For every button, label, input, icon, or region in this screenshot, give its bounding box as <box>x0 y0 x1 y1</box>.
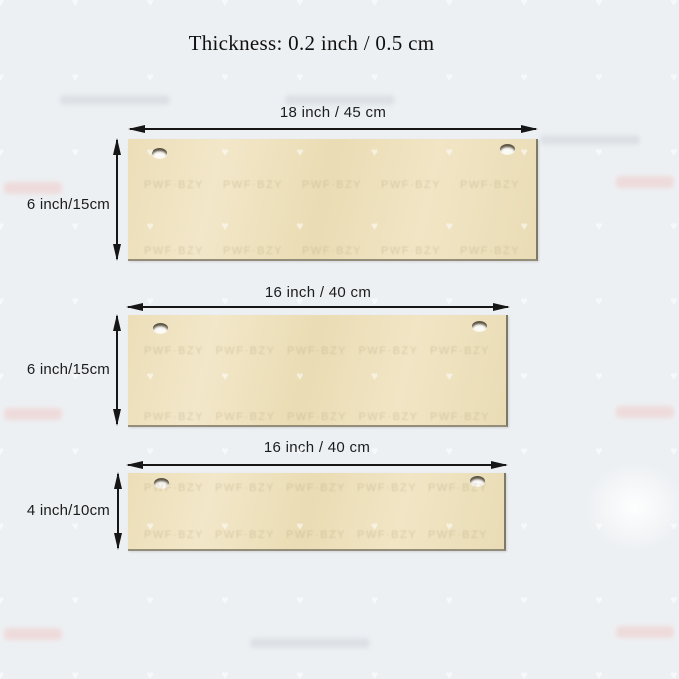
board-watermark-row: PWF·BZYPWF·BZYPWF·BZYPWF·BZYPWF·BZY <box>128 345 506 357</box>
watermark-text: PWF·BZY <box>381 179 441 191</box>
board2-height-arrow <box>116 316 118 424</box>
watermark-text: PWF·BZY <box>302 245 362 257</box>
board-watermark-row: PWF·BZYPWF·BZYPWF·BZYPWF·BZYPWF·BZY <box>128 482 504 494</box>
arrowhead-right-icon <box>521 125 538 133</box>
heart-icon: ♥ <box>0 369 4 383</box>
heart-icon: ♥ <box>371 668 378 679</box>
heart-icon: ♥ <box>0 70 4 84</box>
watermark-text: PWF·BZY <box>223 245 283 257</box>
heart-icon: ♥ <box>521 0 528 9</box>
heart-icon: ♥ <box>521 369 528 383</box>
watermark-text: PWF·BZY <box>215 482 275 494</box>
board2-height-label: 6 inch/15cm <box>26 361 110 378</box>
heart-icon: ♥ <box>595 219 602 233</box>
watermark-text: PWF·BZY <box>357 482 417 494</box>
watermark-text: PWF·BZY <box>430 411 490 423</box>
watermark-text: PWF·BZY <box>357 529 417 541</box>
arrowhead-up-icon <box>114 472 122 489</box>
watermark-text: PWF·BZY <box>460 179 520 191</box>
watermark-smudge <box>616 406 674 418</box>
heart-icon: ♥ <box>595 668 602 679</box>
watermark-text: PWF·BZY <box>216 411 276 423</box>
hanging-hole-icon <box>152 148 167 158</box>
watermark-text: PWF·BZY <box>430 345 490 357</box>
watermark-smudge <box>4 408 62 420</box>
watermark-smudge <box>616 626 674 638</box>
watermark-text: PWF·BZY <box>144 529 204 541</box>
heart-icon: ♥ <box>446 593 453 607</box>
heart-icon: ♥ <box>670 668 677 679</box>
arrowhead-down-icon <box>113 244 121 261</box>
heart-icon: ♥ <box>0 519 4 533</box>
heart-icon: ♥ <box>446 668 453 679</box>
heart-icon: ♥ <box>0 668 4 679</box>
heart-icon: ♥ <box>0 145 4 159</box>
heart-icon: ♥ <box>0 593 4 607</box>
heart-icon: ♥ <box>371 70 378 84</box>
watermark-smudge <box>616 176 674 188</box>
hanging-hole-icon <box>470 476 485 486</box>
heart-icon: ♥ <box>221 593 228 607</box>
watermark-text: PWF·BZY <box>216 345 276 357</box>
heart-icon: ♥ <box>670 219 677 233</box>
heart-icon: ♥ <box>72 593 79 607</box>
board1-height-label: 6 inch/15cm <box>26 196 110 213</box>
heart-icon: ♥ <box>296 0 303 9</box>
heart-icon: ♥ <box>521 444 528 458</box>
arrowhead-left-icon <box>128 125 145 133</box>
heart-icon: ♥ <box>72 145 79 159</box>
heart-icon: ♥ <box>296 593 303 607</box>
watermark-smudge <box>250 638 370 648</box>
arrowhead-right-icon <box>491 461 508 469</box>
arrowhead-left-icon <box>126 303 143 311</box>
heart-icon: ♥ <box>72 444 79 458</box>
heart-icon: ♥ <box>521 668 528 679</box>
heart-icon: ♥ <box>595 0 602 9</box>
heart-icon: ♥ <box>371 0 378 9</box>
heart-icon: ♥ <box>595 593 602 607</box>
arrowhead-down-icon <box>114 533 122 550</box>
heart-icon: ♥ <box>72 219 79 233</box>
heart-icon: ♥ <box>595 145 602 159</box>
watermark-smudge <box>4 182 62 194</box>
watermark-text: PWF·BZY <box>223 179 283 191</box>
wood-board-16x4: PWF·BZYPWF·BZYPWF·BZYPWF·BZYPWF·BZY PWF·… <box>128 473 506 551</box>
watermark-text: PWF·BZY <box>287 345 347 357</box>
heart-icon: ♥ <box>670 593 677 607</box>
watermark-text: PWF·BZY <box>359 411 419 423</box>
watermark-smudge <box>4 628 62 640</box>
watermark-text: PWF·BZY <box>287 411 347 423</box>
heart-icon: ♥ <box>595 519 602 533</box>
heart-icon: ♥ <box>521 519 528 533</box>
heart-icon: ♥ <box>371 593 378 607</box>
light-reflection-blob <box>585 462 679 552</box>
board-watermark-row: PWF·BZYPWF·BZYPWF·BZYPWF·BZYPWF·BZY <box>128 411 506 423</box>
heart-icon: ♥ <box>0 294 4 308</box>
watermark-text: PWF·BZY <box>286 482 346 494</box>
watermark-text: PWF·BZY <box>144 411 204 423</box>
watermark-text: PWF·BZY <box>428 529 488 541</box>
hanging-hole-icon <box>154 478 169 488</box>
heart-icon: ♥ <box>0 219 4 233</box>
watermark-text: PWF·BZY <box>302 179 362 191</box>
hanging-hole-icon <box>472 321 487 331</box>
heart-icon: ♥ <box>221 668 228 679</box>
heart-icon: ♥ <box>147 668 154 679</box>
board1-height-arrow <box>116 140 118 259</box>
heart-icon: ♥ <box>72 294 79 308</box>
board2-width-arrow <box>128 306 508 308</box>
wood-board-16x6: PWF·BZYPWF·BZYPWF·BZYPWF·BZYPWF·BZY PWF·… <box>128 315 508 427</box>
heart-icon: ♥ <box>595 369 602 383</box>
watermark-text: PWF·BZY <box>144 345 204 357</box>
heart-icon: ♥ <box>670 294 677 308</box>
heart-icon: ♥ <box>147 70 154 84</box>
watermark-smudge <box>540 135 640 145</box>
board1-width-label: 18 inch / 45 cm <box>130 104 536 121</box>
heart-icon: ♥ <box>595 444 602 458</box>
board-watermark-row: PWF·BZYPWF·BZYPWF·BZYPWF·BZYPWF·BZY <box>128 179 536 191</box>
board-watermark-row: PWF·BZYPWF·BZYPWF·BZYPWF·BZYPWF·BZY <box>128 529 504 541</box>
heart-icon: ♥ <box>670 145 677 159</box>
hanging-hole-icon <box>500 144 515 154</box>
heart-icon: ♥ <box>670 519 677 533</box>
watermark-text: PWF·BZY <box>381 245 441 257</box>
board1-width-arrow <box>130 128 536 130</box>
wood-board-18x6: PWF·BZYPWF·BZYPWF·BZYPWF·BZYPWF·BZY PWF·… <box>128 139 538 261</box>
heart-icon: ♥ <box>296 668 303 679</box>
watermark-text: PWF·BZY <box>359 345 419 357</box>
heart-icon: ♥ <box>221 0 228 9</box>
heart-icon: ♥ <box>595 70 602 84</box>
watermark-text: PWF·BZY <box>144 179 204 191</box>
product-dimension-image: Thickness: 0.2 inch / 0.5 cm 18 inch / 4… <box>0 0 679 679</box>
heart-icon: ♥ <box>72 519 79 533</box>
arrowhead-right-icon <box>493 303 510 311</box>
heart-icon: ♥ <box>72 0 79 9</box>
heart-icon: ♥ <box>0 0 4 9</box>
heart-icon: ♥ <box>446 0 453 9</box>
heart-icon: ♥ <box>595 294 602 308</box>
heart-icon: ♥ <box>221 70 228 84</box>
heart-icon: ♥ <box>670 70 677 84</box>
arrowhead-down-icon <box>113 409 121 426</box>
heart-icon: ♥ <box>521 70 528 84</box>
heart-icon: ♥ <box>670 0 677 9</box>
board3-height-label: 4 inch/10cm <box>22 502 110 519</box>
watermark-text: PWF·BZY <box>460 245 520 257</box>
heart-icon: ♥ <box>670 444 677 458</box>
arrowhead-left-icon <box>126 461 143 469</box>
heart-icon: ♥ <box>147 593 154 607</box>
heart-icon: ♥ <box>72 70 79 84</box>
heart-icon: ♥ <box>296 70 303 84</box>
heart-icon: ♥ <box>446 70 453 84</box>
arrowhead-up-icon <box>113 314 121 331</box>
heart-icon: ♥ <box>0 444 4 458</box>
watermark-text: PWF·BZY <box>215 529 275 541</box>
heart-icon: ♥ <box>521 294 528 308</box>
board3-height-arrow <box>117 474 119 548</box>
hanging-hole-icon <box>153 323 168 333</box>
heart-icon: ♥ <box>72 668 79 679</box>
board3-width-arrow <box>128 464 506 466</box>
watermark-text: PWF·BZY <box>144 245 204 257</box>
arrowhead-up-icon <box>113 138 121 155</box>
thickness-title: Thickness: 0.2 inch / 0.5 cm <box>0 31 651 56</box>
heart-icon: ♥ <box>521 593 528 607</box>
watermark-text: PWF·BZY <box>144 482 204 494</box>
watermark-text: PWF·BZY <box>286 529 346 541</box>
board-watermark-row: PWF·BZYPWF·BZYPWF·BZYPWF·BZYPWF·BZY <box>128 245 536 257</box>
board2-width-label: 16 inch / 40 cm <box>128 284 508 301</box>
heart-icon: ♥ <box>147 0 154 9</box>
heart-icon: ♥ <box>670 369 677 383</box>
board3-width-label: 16 inch / 40 cm <box>128 439 506 456</box>
